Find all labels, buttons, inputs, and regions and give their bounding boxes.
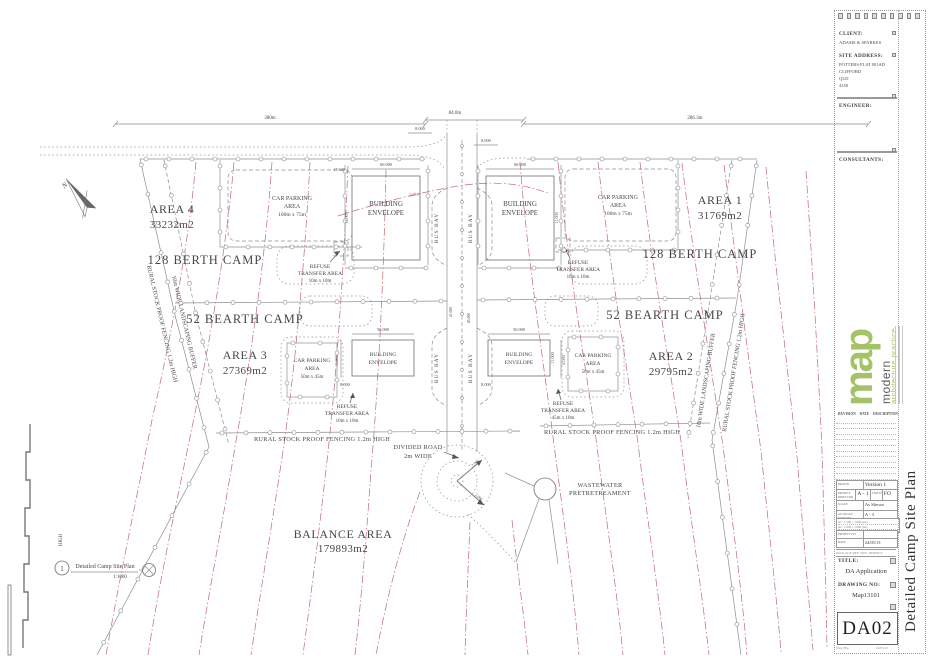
refuse-mr-1: REFUSE	[553, 401, 574, 407]
refuse-ml-3: 10m x 10m	[336, 419, 359, 424]
fencing-bottom-left: RURAL STOCK PROOF FENCING 1.2m HIGH	[254, 436, 390, 443]
area1-name: AREA 1	[698, 193, 743, 207]
fence-posts	[102, 145, 759, 645]
footer-right: 24/05/13	[876, 646, 888, 650]
refuse-tl-1: REFUSE	[310, 264, 331, 270]
map-logo-mark: map	[837, 256, 881, 406]
wastewater-1: WASTEWATER	[578, 482, 623, 489]
dim-top-right: 286.3m	[687, 116, 702, 121]
carpark-tl-3: 100m x 75m	[278, 212, 307, 218]
section-marker-icon	[890, 582, 896, 588]
dim-top-mid: 84.0m	[449, 111, 462, 116]
revision-table-header: REVISION DATE DESCRIPTION	[836, 412, 900, 416]
refuse-ml-2: TRANSFER AREA	[325, 411, 369, 417]
section-marker-icon	[890, 604, 896, 610]
divider	[837, 97, 897, 99]
sheet-edge-marks	[8, 424, 30, 655]
carpark-tr-3: 100m x 75m	[604, 211, 633, 217]
carpark-tl-1: CAR PARKING	[272, 196, 313, 202]
carpark-mr-3: 50m x 45m	[582, 370, 605, 375]
date-col: DATE	[860, 412, 870, 416]
title-label: TITLE:	[838, 558, 859, 564]
envelope-mr-2: ENVELOPE	[505, 360, 534, 366]
client-label: CLIENT:	[839, 31, 863, 37]
drawing-no-label: DRAWING NO:	[838, 582, 880, 588]
bus-bay-bl: BUS BAY	[434, 353, 440, 383]
carpark-tr-2: AREA	[610, 203, 627, 209]
legend-scale: 1:1000	[113, 575, 127, 580]
contour-elevation-label: 560m	[409, 192, 421, 199]
buffer-diag-right: 10m WIDE LANDSCAPING BUFFER	[696, 333, 717, 428]
package-ref: PACKAGE REF: DOC PROJECT	[836, 549, 896, 557]
footer-left: Dwg File	[836, 646, 849, 650]
info-row-date: DATE 24/05/13	[836, 538, 898, 548]
section-marker-icon	[890, 558, 896, 564]
envelope-mr-1: BUILDING	[506, 352, 533, 358]
title-value: DA Application	[834, 568, 898, 575]
bus-bay-tl: BUS BAY	[434, 213, 440, 243]
balance-size: 179893m2	[318, 543, 368, 555]
area4-name: AREA 4	[150, 202, 195, 216]
dim-offset-b: 8.000	[481, 138, 491, 143]
fencing-partial: HIGH	[59, 533, 64, 546]
engineer-label: ENGINEER:	[839, 103, 872, 109]
site-address-label: SITE ADDRESS:	[839, 53, 883, 59]
wastewater-2: PRETRETREAMENT	[569, 490, 631, 497]
section-marker-icon	[892, 94, 896, 98]
carpark-tl-2: AREA	[284, 204, 301, 210]
section-marker-icon	[892, 148, 896, 152]
site-address-line4: 4350	[839, 83, 848, 88]
camp-52-right: 52 BEARTH CAMP	[606, 308, 723, 322]
map-logo: map modern architecture practice	[835, 231, 899, 411]
area1-size: 31769m2	[698, 210, 742, 222]
dim-top-left: 380m	[264, 116, 276, 121]
plan-labels: N 380m 84.0m 286.3m 8.000 8.000 AREA 4 3…	[59, 111, 757, 580]
dim-be-mid-w-l: 50.000	[377, 327, 389, 332]
dim-be-top-off: 17.600	[333, 167, 345, 172]
dim-be-mid-w-r: 50.000	[513, 327, 525, 332]
road-and-structures	[40, 120, 676, 564]
dim-be-mid-gap-l: 5.000	[334, 355, 339, 365]
site-address-line3: QLD	[839, 76, 848, 81]
refuse-tl-2: TRANSFER AREA	[298, 271, 342, 277]
dim-be-mid-off-r: 8.000	[481, 382, 491, 387]
balance-name: BALANCE AREA	[294, 527, 393, 541]
sheet-number-box: DA02	[837, 612, 898, 645]
refuse-tr-3: 10m x 10m	[567, 275, 590, 280]
envelope-tl-1: BUILDING	[369, 200, 403, 208]
dim-offset-a: 8.000	[415, 126, 425, 131]
section-marker-icon	[892, 53, 896, 57]
contour-lines	[106, 162, 827, 655]
sheet-number: DA02	[842, 618, 892, 640]
dim-be-top-w-l: 60.000	[380, 162, 392, 167]
camp-52-left: 52 BEARTH CAMP	[186, 312, 303, 326]
area2-size: 29795m2	[649, 366, 693, 378]
side-title: Detailed Camp Site Plan	[903, 412, 921, 632]
refuse-ml-1: REFUSE	[337, 404, 358, 410]
refuse-mr-2: TRANSFER AREA	[541, 408, 585, 414]
envelope-ml-1: BUILDING	[370, 352, 397, 358]
envelope-ml-2: ENVELOPE	[369, 360, 398, 366]
divider	[837, 151, 897, 153]
site-address-line2: CLIFFORD	[839, 69, 861, 74]
carpark-mr-2: AREA	[586, 361, 601, 367]
site-plan-drawing: N 380m 84.0m 286.3m 8.000 8.000 AREA 4 3…	[0, 0, 928, 656]
north-arrow	[58, 173, 99, 219]
section-marker-icon	[892, 31, 896, 35]
envelope-tr-2: ENVELOPE	[502, 209, 538, 217]
revision-col: REVISION	[838, 412, 856, 416]
carpark-tr-1: CAR PARKING	[598, 195, 639, 201]
carpark-ml-2: AREA	[305, 366, 320, 372]
area4-size: 33232m2	[150, 219, 194, 231]
envelope-tl-2: ENVELOPE	[368, 209, 404, 217]
carpark-ml-3: 50m x 45m	[301, 375, 324, 380]
dim-be-top-h-r: 11.000	[554, 212, 559, 224]
bus-bay-tr: BUS BAY	[468, 213, 474, 243]
dim-road-b: 45.000	[467, 313, 471, 324]
fencing-bottom-right: RURAL STOCK PROOF FENCING 1.2m HIGH	[544, 429, 680, 436]
legend-number: 1	[60, 565, 64, 573]
site-address-line1: POTTERS FLAT ROAD	[839, 62, 885, 67]
carpark-ml-1: CAR PARKING	[294, 358, 331, 364]
envelope-tr-1: BUILDING	[503, 200, 537, 208]
dim-road-a: 41.000	[449, 307, 453, 318]
refuse-tl-3: 10m x 10m	[309, 279, 332, 284]
consultants-label: CONSULTANTS:	[839, 157, 884, 163]
refuse-mr-3: 45m x 10m	[552, 416, 575, 421]
dim-be-mid-off-l: 8.000	[340, 382, 350, 387]
bus-bay-br: BUS BAY	[468, 353, 474, 383]
carpark-mr-1: CAR PARKING	[575, 353, 612, 359]
area3-size: 27369m2	[223, 365, 267, 377]
dim-be-top-h: 11.005	[344, 212, 349, 224]
drawing-sheet: N 380m 84.0m 286.3m 8.000 8.000 AREA 4 3…	[0, 0, 928, 656]
divided-road-2: 2m WIDE	[404, 453, 432, 460]
description-col: DESCRIPTION	[873, 412, 898, 416]
dim-be-top-w-r: 60.000	[514, 162, 526, 167]
camp-128-right: 128 BERTH CAMP	[643, 247, 758, 261]
drawing-no-value: Map13101	[834, 592, 898, 599]
client-value: ADAMS & SPARKES	[839, 40, 881, 45]
refuse-tr-1: REFUSE	[568, 260, 589, 266]
divided-road-1: DIVIDED ROAD	[393, 444, 442, 451]
dim-be-mid-h: 11.000	[550, 352, 555, 364]
dim-be-mid-gap-r: 5.000	[561, 355, 566, 365]
legend-title: Detailed Camp Site Plan	[75, 564, 134, 570]
area3-name: AREA 3	[223, 348, 268, 362]
refuse-tr-2: TRANSFER AREA	[556, 267, 600, 273]
area2-name: AREA 2	[649, 349, 694, 363]
camp-128-left: 128 BERTH CAMP	[148, 253, 263, 267]
